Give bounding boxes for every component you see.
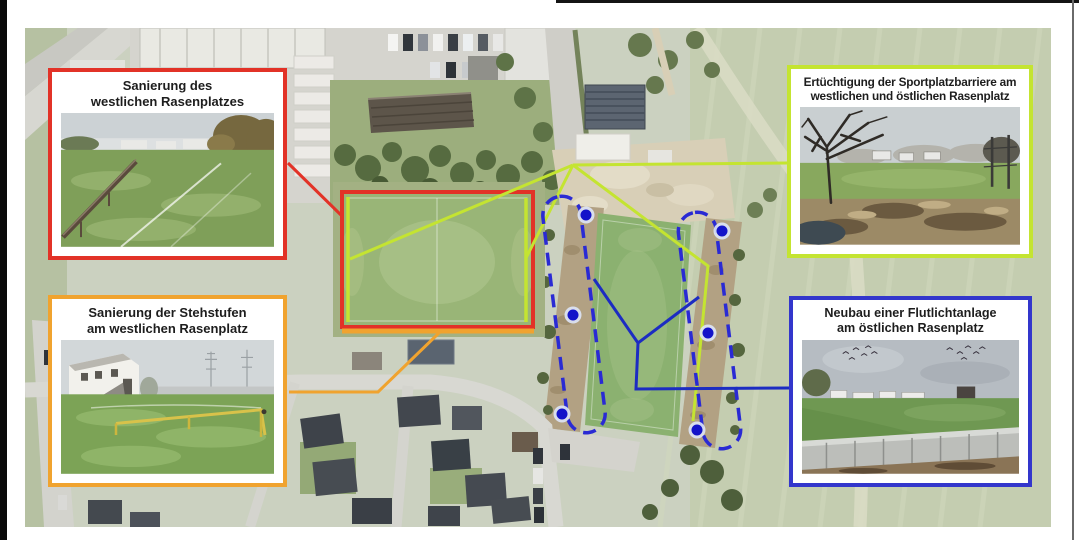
photo-west-pitch — [61, 113, 274, 247]
callout-title: Ertüchtigung der Sportplatzbarriere am w… — [800, 75, 1020, 103]
photo-flutlichtanlage — [802, 340, 1019, 474]
callout-title: Neubau einer Flutlichtanlage am östliche… — [802, 306, 1019, 336]
photo-sportplatzbarriere — [800, 107, 1020, 245]
callout-title: Sanierung der Stehstufen am westlichen R… — [61, 305, 274, 336]
callout-ertuechtigung-sportplatzbarriere: Ertüchtigung der Sportplatzbarriere am w… — [787, 65, 1033, 258]
callout-title: Sanierung des westlichen Rasenplatzes — [61, 78, 274, 109]
callout-sanierung-stehstufen: Sanierung der Stehstufen am westlichen R… — [48, 295, 287, 487]
callout-sanierung-west-rasenplatz: Sanierung des westlichen Rasenplatzes — [48, 68, 287, 260]
plan-figure: Sanierung des westlichen Rasenplatzes — [0, 0, 1079, 540]
callout-neubau-flutlichtanlage: Neubau einer Flutlichtanlage am östliche… — [789, 296, 1032, 487]
photo-stehstufen — [61, 340, 274, 474]
